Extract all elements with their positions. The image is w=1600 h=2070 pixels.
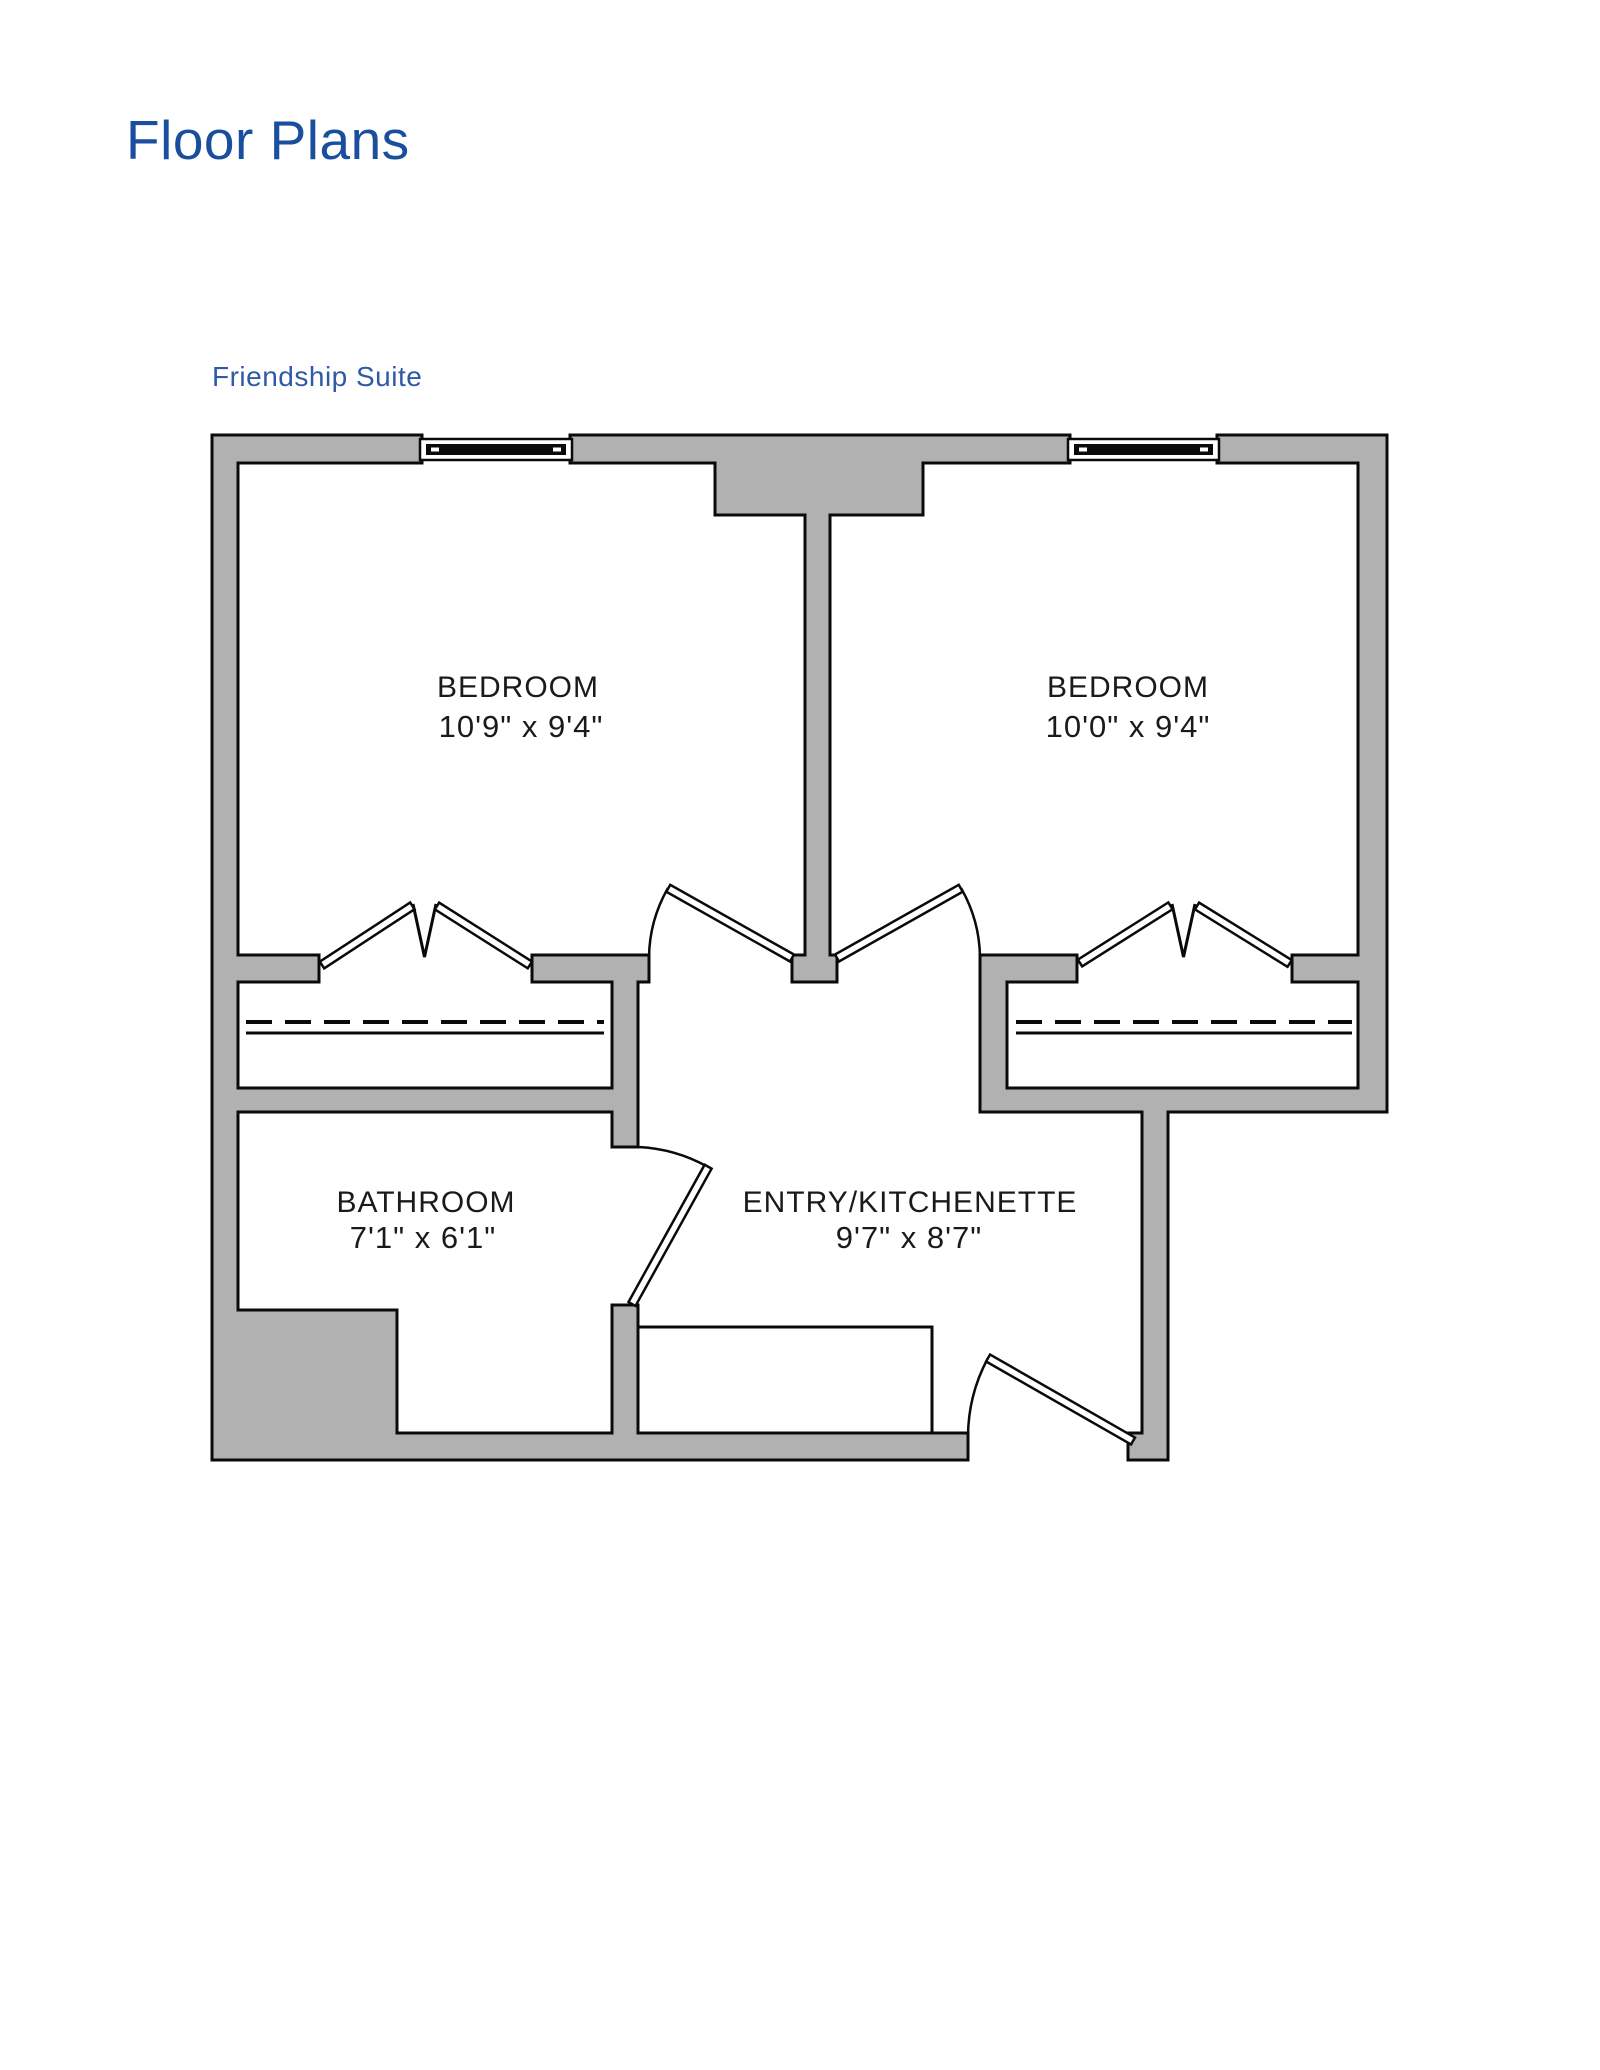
room-name: BATHROOM [336, 1186, 515, 1219]
door-bedroom-right [835, 885, 980, 962]
room-dimensions: 10'0" x 9'4" [1046, 709, 1211, 744]
room-label-entry-kitchenette: ENTRY/KITCHENETTE 9'7" x 8'7" [743, 1186, 1078, 1255]
bifold-fold-icon [413, 904, 436, 957]
door-bedroom-left [649, 885, 794, 962]
kitchenette-counter [638, 1327, 932, 1433]
window-left-icon [420, 439, 572, 460]
room-label-bedroom-left: BEDROOM 10'9" x 9'4" [437, 671, 603, 744]
room-name: BEDROOM [1047, 671, 1209, 704]
door-bathroom [629, 1147, 712, 1306]
door-entry [968, 1355, 1135, 1445]
bifold-fold-icon [1172, 904, 1195, 957]
room-label-bathroom: BATHROOM 7'1" x 6'1" [336, 1186, 515, 1255]
floor-plan-page: Floor Plans Friendship Suite [0, 0, 1600, 2070]
wall-center-partition [570, 435, 1070, 982]
room-name: BEDROOM [437, 671, 599, 704]
room-dimensions: 9'7" x 8'7" [836, 1220, 983, 1255]
window-right-icon [1068, 439, 1219, 460]
walls-layer [212, 435, 1387, 1460]
room-dimensions: 10'9" x 9'4" [439, 709, 604, 744]
wall-right-section [980, 435, 1387, 1460]
room-dimensions: 7'1" x 6'1" [350, 1220, 497, 1255]
room-label-bedroom-right: BEDROOM 10'0" x 9'4" [1046, 671, 1211, 744]
floor-plan-drawing: BEDROOM 10'9" x 9'4" BEDROOM 10'0" x 9'4… [0, 0, 1600, 2070]
room-name: ENTRY/KITCHENETTE [743, 1186, 1078, 1219]
